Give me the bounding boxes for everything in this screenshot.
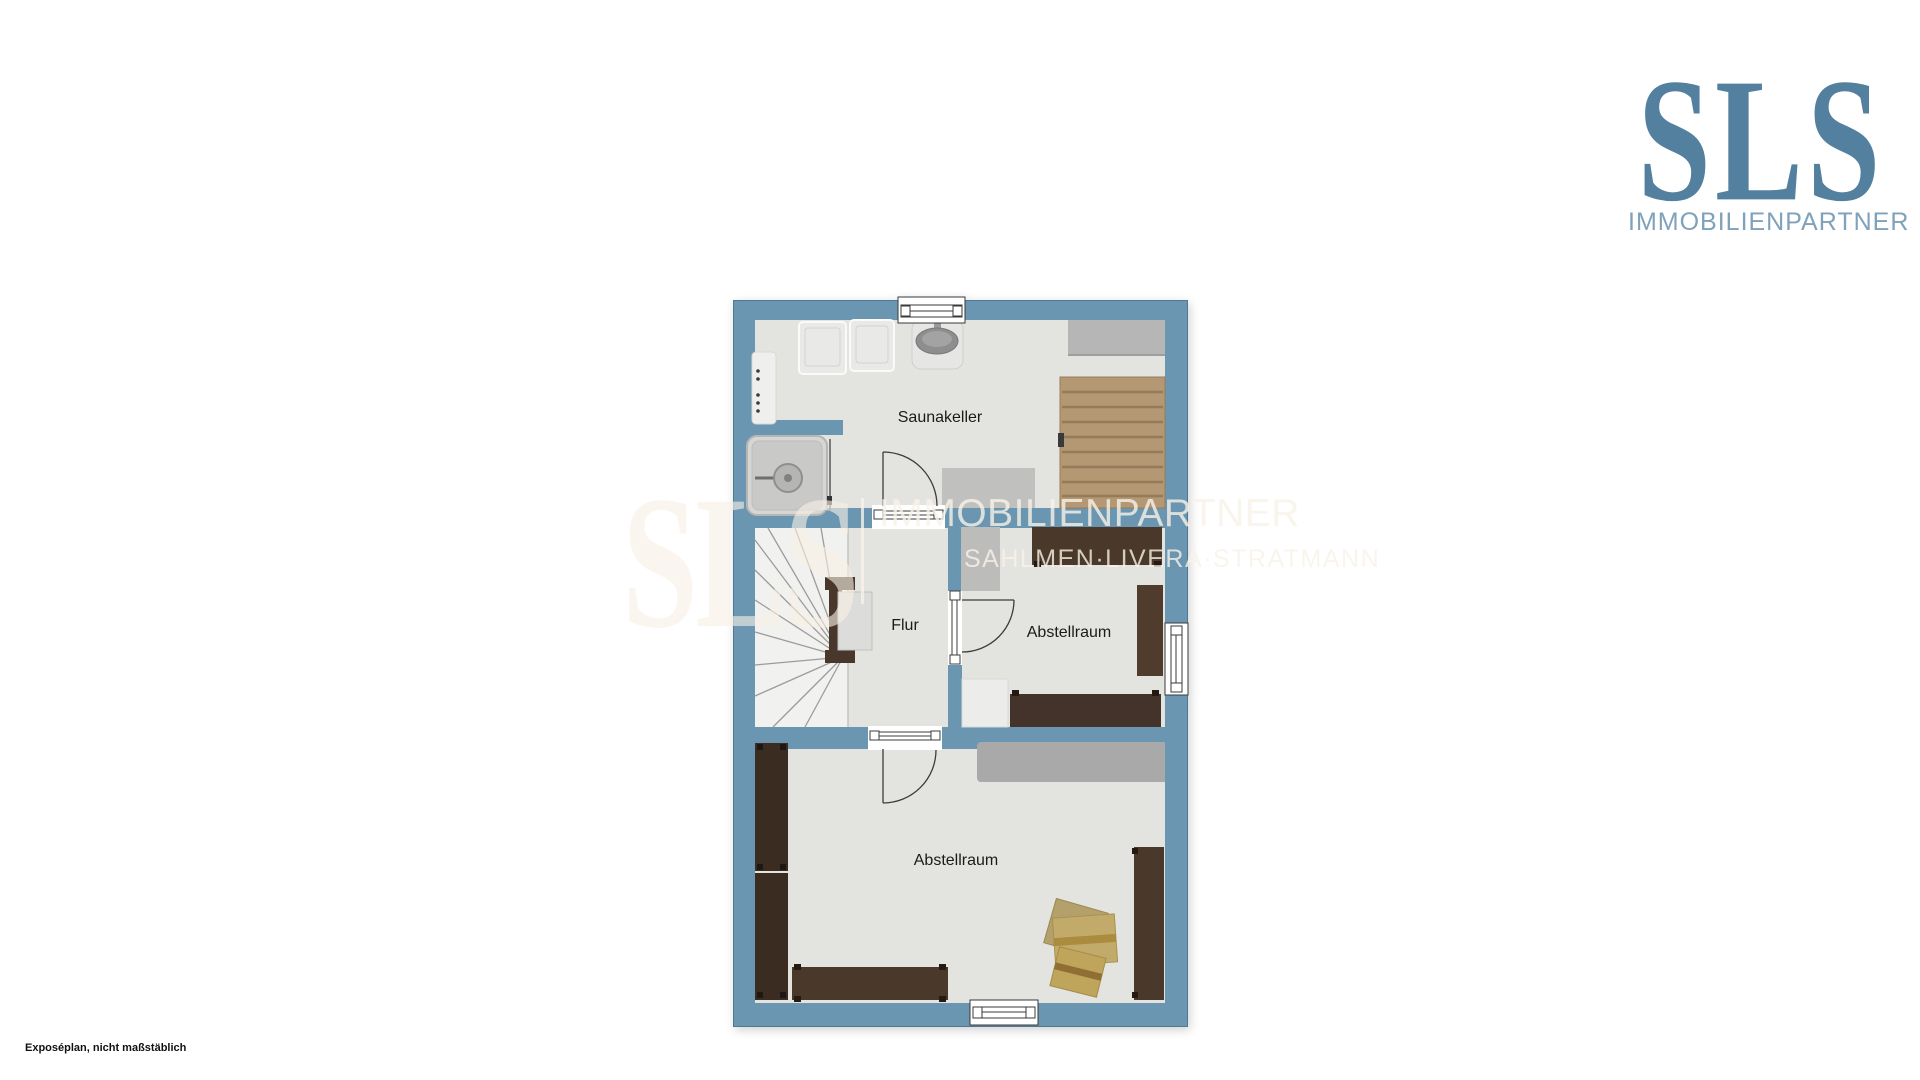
shower [747, 436, 827, 515]
page: SLS IMMOBILIENPARTNER [0, 0, 1920, 1080]
counter-saunakeller [1068, 320, 1165, 355]
sink [912, 320, 963, 369]
counter-bottom-room [977, 742, 1165, 782]
shelf-top-middle-room [1032, 527, 1162, 567]
company-logo: SLS IMMOBILIENPARTNER [1628, 52, 1894, 184]
logo-text: SLS [1628, 52, 1894, 229]
window-bottom [970, 1000, 1038, 1025]
white-box-cabinet [962, 679, 1008, 727]
room-label-flur: Flur [891, 617, 919, 634]
shelf-right-bottom-room [1132, 847, 1164, 1000]
dryer [850, 320, 894, 371]
floor-mat [942, 468, 1035, 508]
sauna-bench [1058, 377, 1165, 508]
shelf-bottom-middle-room [1010, 690, 1161, 727]
footnote: Exposéplan, nicht maßstäblich [25, 1042, 186, 1054]
window-right [1165, 623, 1188, 695]
shelf-right-middle-room [1137, 585, 1163, 676]
room-label-abstellraum-bottom: Abstellraum [914, 852, 998, 869]
logo-tagline: IMMOBILIENPARTNER [1628, 208, 1894, 237]
gray-cabinet [961, 527, 1000, 591]
shelf-bottom-bottom-room [792, 964, 948, 1002]
floorplan: Saunakeller Flur Abstellraum Abstellraum [733, 300, 1188, 1027]
room-label-abstellraum-middle: Abstellraum [1027, 624, 1111, 641]
wall-heater-panel [752, 352, 776, 424]
window-top [898, 297, 965, 323]
room-label-saunakeller: Saunakeller [898, 409, 983, 426]
washing-machine [799, 322, 846, 374]
